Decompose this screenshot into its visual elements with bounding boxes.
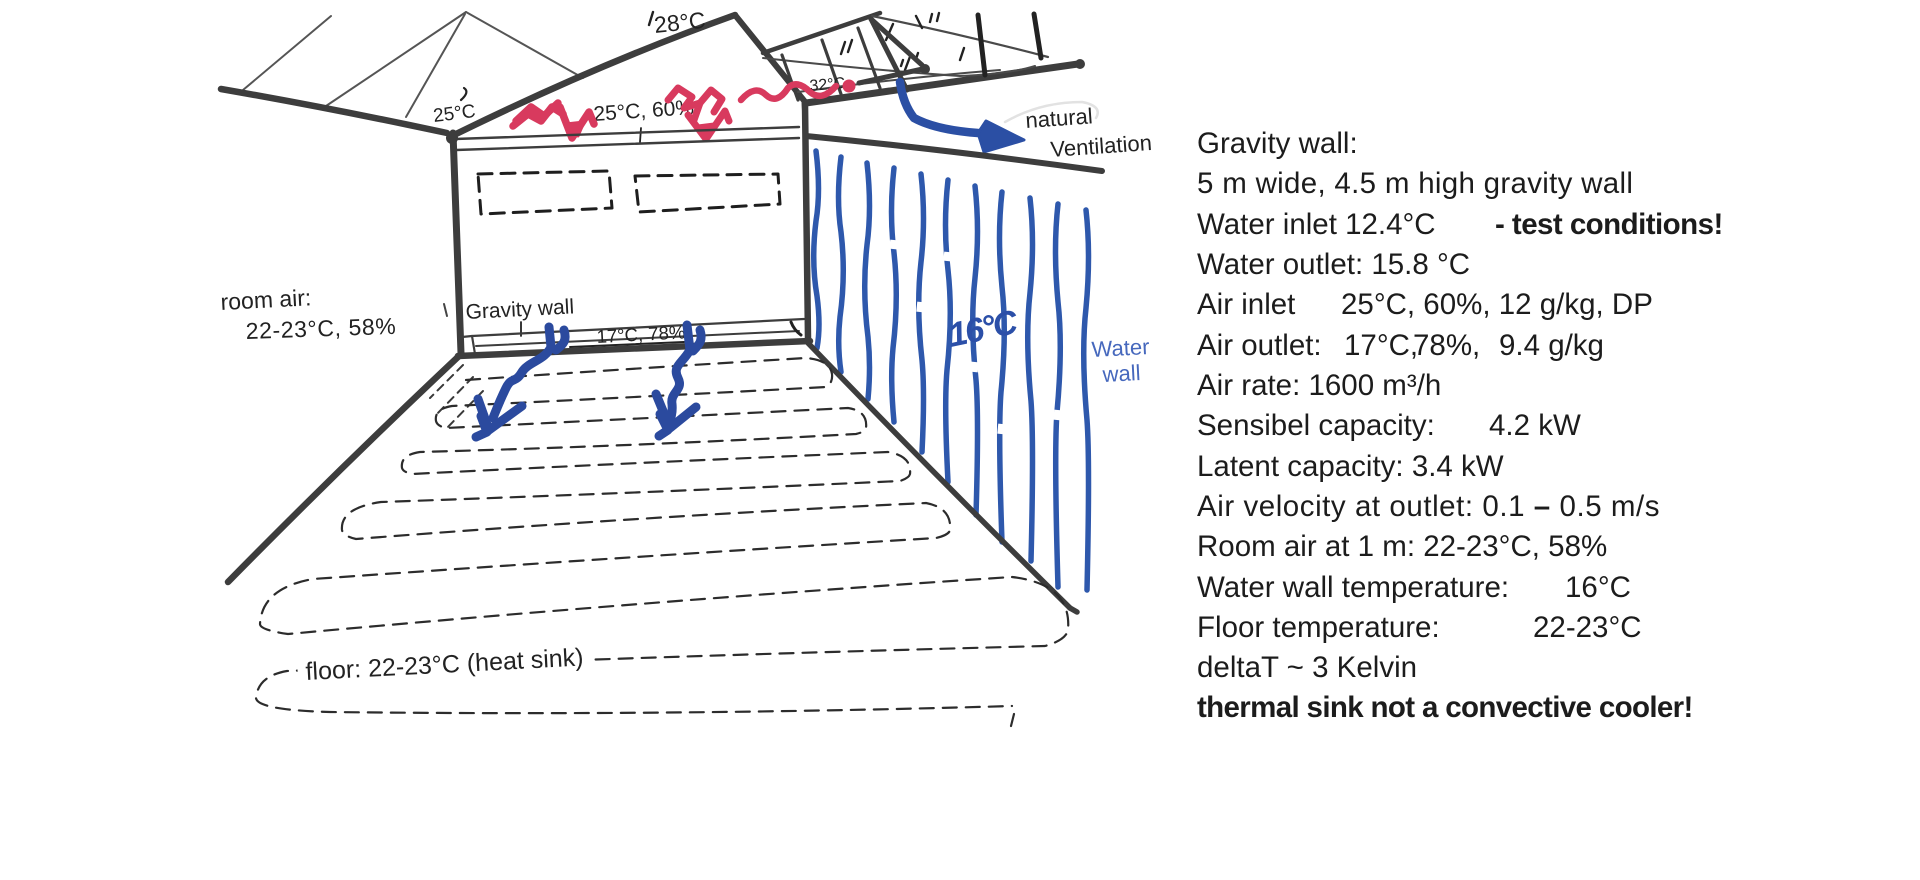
svg-text:room air:: room air: bbox=[220, 284, 312, 315]
svg-text:25°C: 25°C bbox=[432, 101, 477, 127]
svg-text:natural: natural bbox=[1025, 103, 1094, 133]
svg-text:Ventilation: Ventilation bbox=[1050, 130, 1153, 162]
svg-text:25°C, 60%: 25°C, 60% bbox=[593, 96, 695, 126]
svg-text:Gravity wall: Gravity wall bbox=[465, 295, 575, 324]
svg-text:22-23°C, 58%: 22-23°C, 58% bbox=[245, 313, 396, 344]
svg-text:28°C: 28°C bbox=[653, 7, 707, 38]
svg-text:16°C: 16°C bbox=[945, 303, 1022, 355]
svg-text:wall: wall bbox=[1101, 360, 1141, 387]
svg-text:Water: Water bbox=[1091, 334, 1150, 362]
